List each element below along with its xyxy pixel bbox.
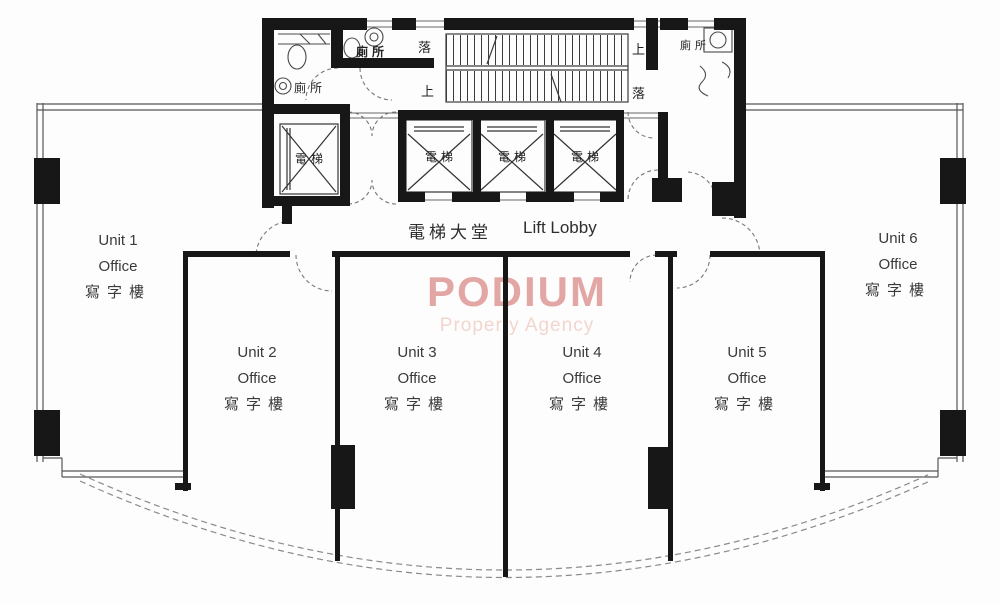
wall-lift1-bottom (262, 196, 350, 206)
wall-bank-left (398, 110, 406, 200)
wall-corridor-right (658, 112, 668, 180)
wall-core-top-4 (660, 18, 688, 30)
mullion-partition-unit2-3 (331, 445, 355, 509)
unit-3-type: Office (352, 366, 482, 392)
unit-4-name-zh: 寫字樓 (517, 392, 647, 418)
vestibule-doors-left (348, 112, 396, 204)
floor-plan: PODIUM Property Agency (0, 0, 1000, 605)
lobby-label-en: Lift Lobby (523, 218, 597, 238)
wall-lobby-left-stub (282, 204, 292, 224)
unit5-door-arc (677, 255, 710, 288)
stair-down-label-left: 落 (418, 37, 431, 56)
unit6-door-arc (722, 218, 760, 255)
mullion-partition-unit4-5 (648, 447, 670, 509)
lift4-label: 電梯 (571, 148, 603, 165)
unit-4-label: Unit 4 Office 寫字樓 (517, 340, 647, 418)
wall-lobby-front-2 (332, 251, 630, 257)
wall-corridor-block-right (712, 182, 744, 216)
wall-partition-unit3-4 (503, 251, 508, 577)
wall-lift1-left (262, 104, 272, 204)
unit-5-name-zh: 寫字樓 (682, 392, 812, 418)
unit-5-type: Office (682, 366, 812, 392)
mullion-right-lower (940, 410, 966, 456)
wall-core-top-3 (444, 18, 634, 30)
stair-up-label-right: 上 (632, 39, 645, 58)
lift2-label: 電梯 (425, 148, 457, 165)
wall-bank-post-2 (546, 118, 554, 196)
wall-partition-unit5-6 (820, 251, 825, 491)
unit-6-type: Office (833, 252, 963, 278)
wall-bank-sill-1 (398, 192, 425, 202)
lift1-label: 電梯 (295, 150, 327, 167)
stair-treads-lower (446, 71, 628, 101)
stair-down-label-right: 落 (632, 83, 645, 102)
wall-partition-unit4-5 (668, 251, 673, 561)
toilet-b-label: 廁所 (356, 43, 388, 60)
wall-toilet-c-left (646, 18, 658, 70)
toilet-a-label: 廁所 (294, 79, 326, 96)
toilet-c-label: 廁所 (680, 37, 710, 53)
wall-bank-post-1 (473, 118, 481, 196)
wall-core-top-2 (392, 18, 416, 30)
wall-bank-sill-2 (452, 192, 500, 202)
wall-bank-right (616, 110, 624, 200)
unit4-door-arc (630, 255, 657, 282)
stair-up-label-left: 上 (421, 81, 434, 100)
unit-6-label: Unit 6 Office 寫字樓 (833, 226, 963, 304)
wall-lobby-front-4 (710, 251, 825, 257)
mullion-left-lower (34, 410, 60, 456)
unit-4-type: Office (517, 366, 647, 392)
unit-5-label: Unit 5 Office 寫字樓 (682, 340, 812, 418)
unit-6-name-zh: 寫字樓 (833, 278, 963, 304)
unit-2-name: Unit 2 (192, 340, 322, 366)
wall-lift1-right (340, 104, 350, 204)
unit-1-name-zh: 寫字樓 (53, 280, 183, 306)
stair-treads-upper (446, 35, 628, 65)
unit-1-label: Unit 1 Office 寫字樓 (53, 228, 183, 306)
unit1-door-arc (256, 221, 292, 255)
wall-lobby-front-1 (183, 251, 290, 257)
unit-2-label: Unit 2 Office 寫字樓 (192, 340, 322, 418)
unit-3-name: Unit 3 (352, 340, 482, 366)
wall-bank-sill-4 (600, 192, 624, 202)
mullion-right-upper (940, 158, 966, 204)
lift3-label: 電梯 (498, 148, 530, 165)
unit-2-type: Office (192, 366, 322, 392)
wall-lift1-top (262, 104, 350, 114)
unit-5-name: Unit 5 (682, 340, 812, 366)
wall-corridor-block-left (652, 178, 682, 202)
unit-3-label: Unit 3 Office 寫字樓 (352, 340, 482, 418)
wall-partition-unit1-2 (183, 251, 188, 491)
wall-partition-unit5-6-foot (814, 483, 830, 490)
mullion-left-upper (34, 158, 60, 204)
unit-6-name: Unit 6 (833, 226, 963, 252)
lobby-label-zh: 電梯大堂 (408, 218, 492, 243)
wall-core-top-1 (262, 18, 367, 30)
wall-bank-top (398, 110, 624, 120)
unit-4-name: Unit 4 (517, 340, 647, 366)
unit-1-name: Unit 1 (53, 228, 183, 254)
unit-2-name-zh: 寫字樓 (192, 392, 322, 418)
unit-3-name-zh: 寫字樓 (352, 392, 482, 418)
unit2-door-arc (296, 255, 332, 291)
unit-1-type: Office (53, 254, 183, 280)
wall-partition-unit2-3 (335, 251, 340, 561)
wall-lobby-front-3 (655, 251, 677, 257)
wall-partition-unit1-2-foot (175, 483, 191, 490)
wall-bank-sill-3 (526, 192, 574, 202)
